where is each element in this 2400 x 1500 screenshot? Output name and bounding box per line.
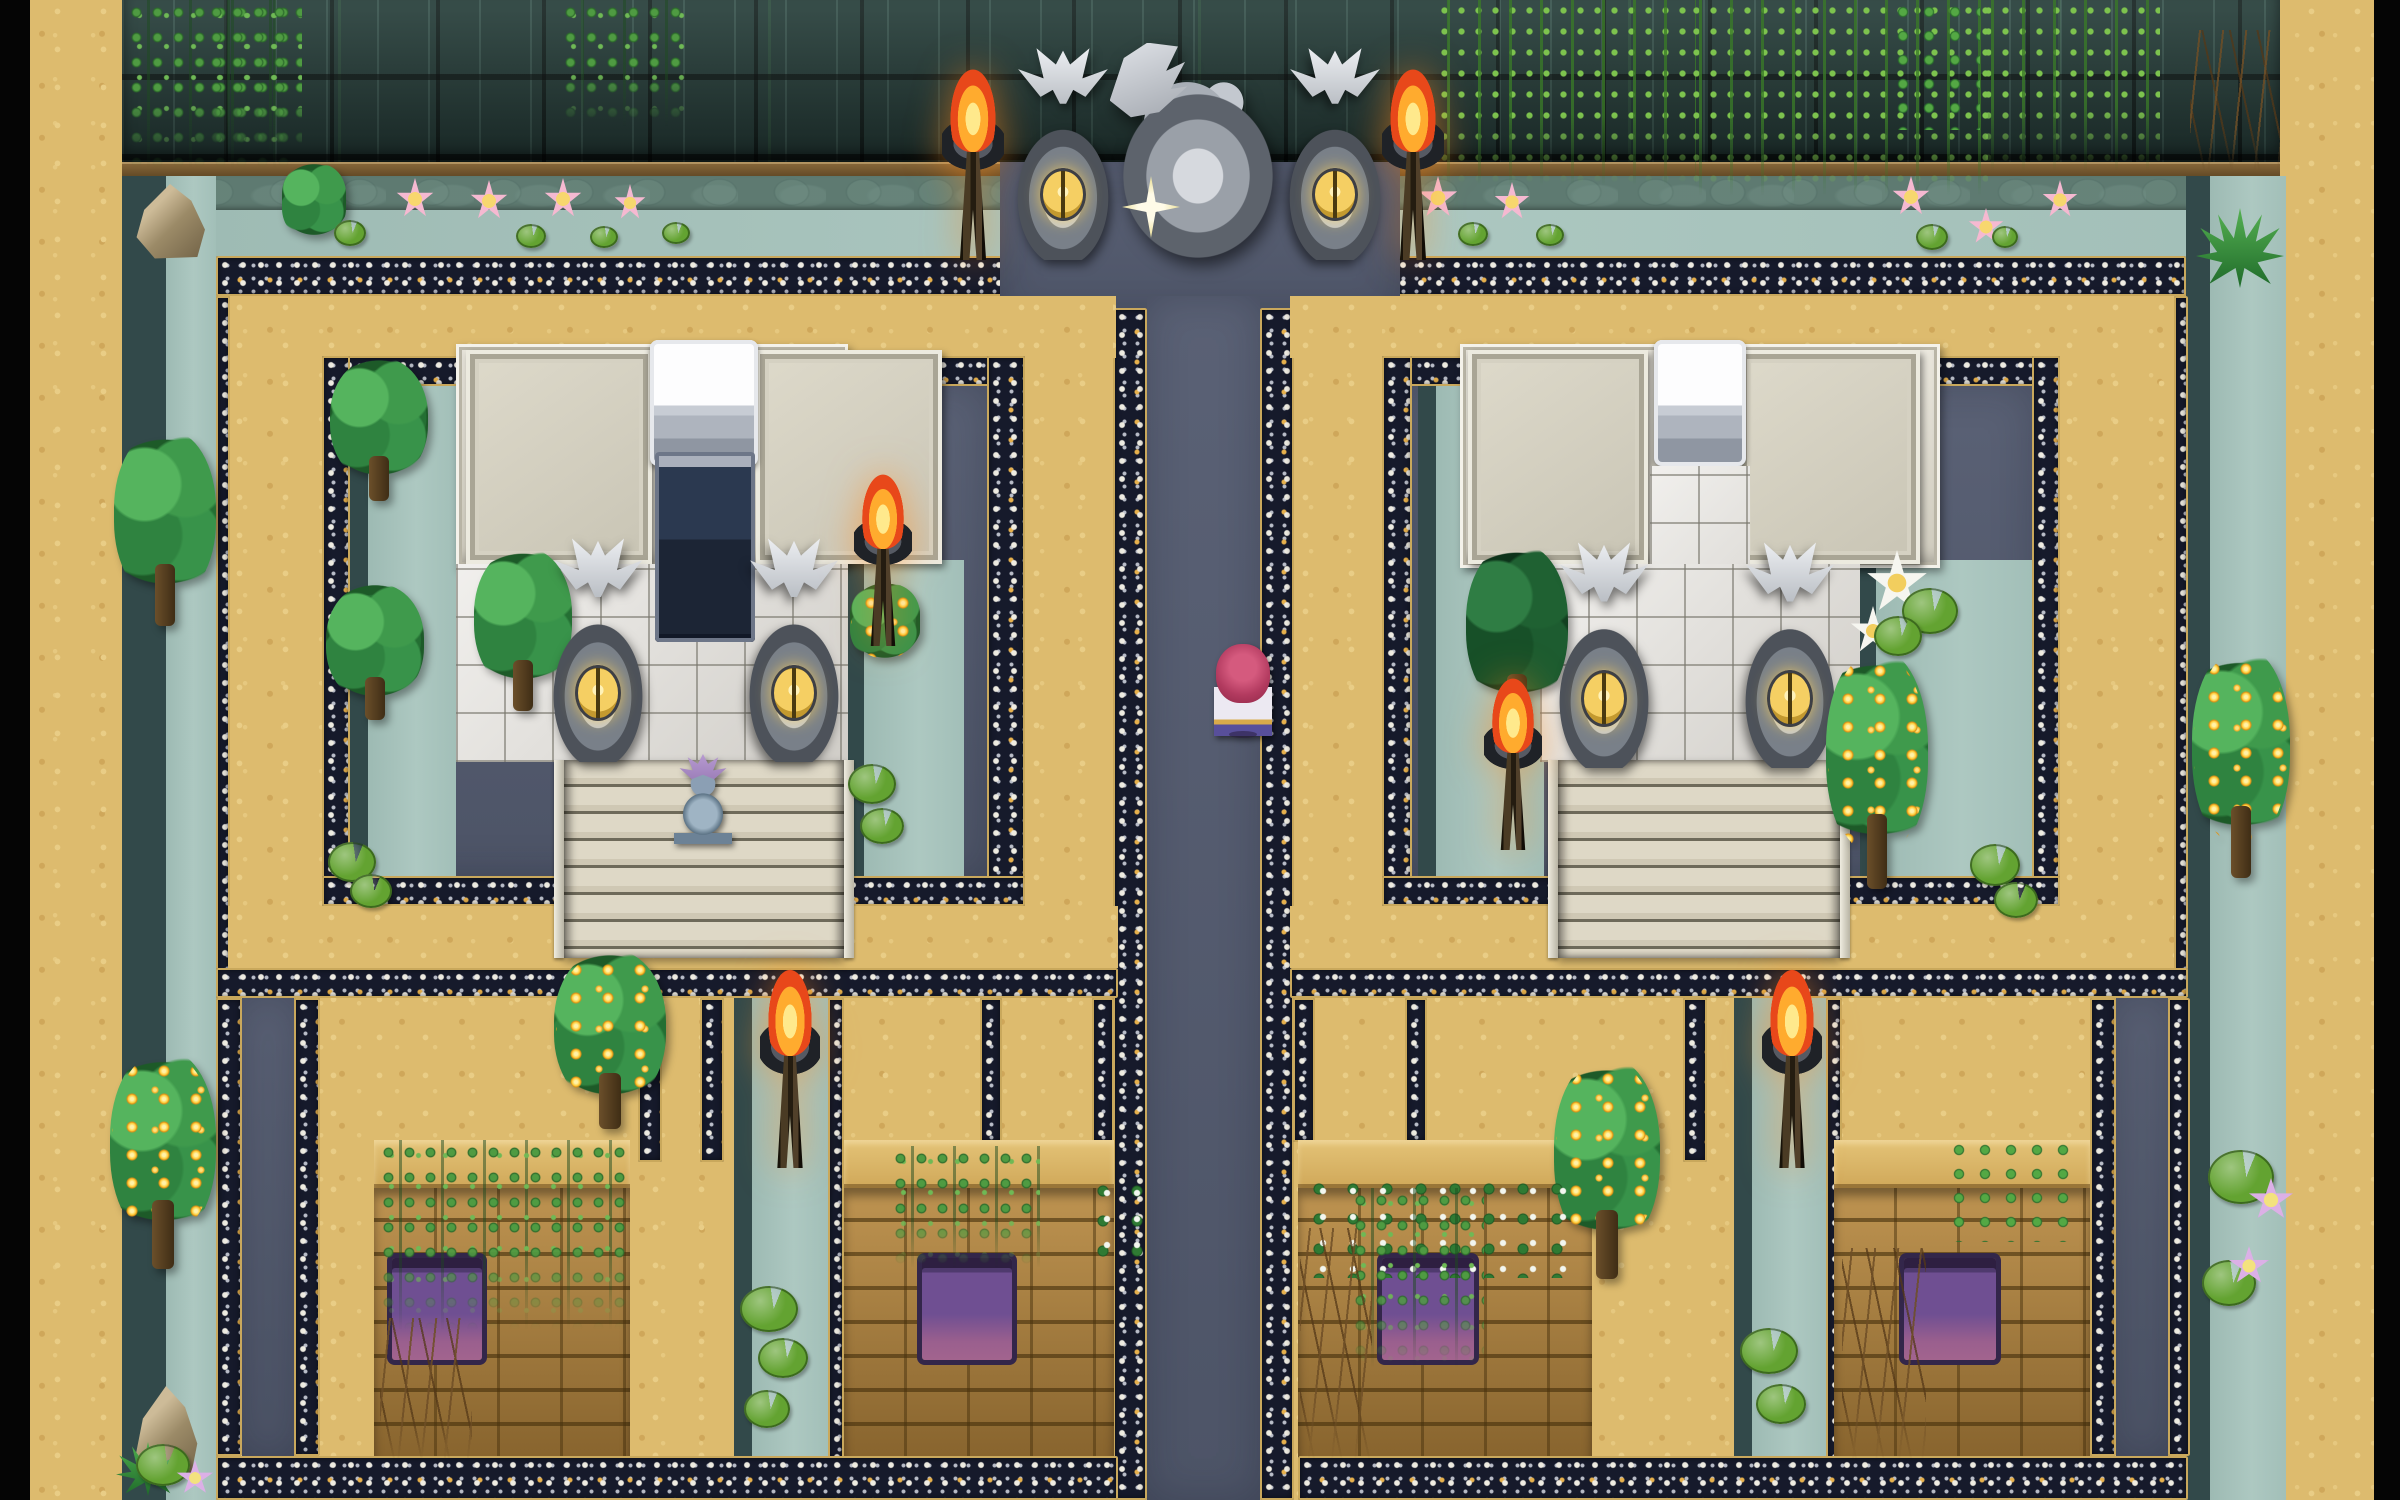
- east-relief-panel-left: [1468, 350, 1648, 564]
- pad-n5: [1458, 222, 1488, 246]
- pad-n3: [590, 226, 618, 248]
- pad-ec3: [1970, 844, 2020, 886]
- pad-n7: [1916, 224, 1948, 250]
- player-character[interactable]: [1214, 644, 1272, 746]
- moat-flower-tree-west: [110, 1050, 216, 1240]
- wall-dry-twigs: [2190, 30, 2280, 170]
- moat-left-shadow: [122, 176, 168, 1500]
- gate-statue-west[interactable]: [1012, 46, 1114, 260]
- pad-n1: [334, 220, 366, 246]
- west-altar[interactable]: [650, 340, 758, 466]
- east-court-sand-left[interactable]: [1294, 296, 1382, 970]
- west-court-trim-inner-right: [987, 356, 1025, 906]
- center-path[interactable]: [1147, 296, 1260, 1500]
- east-court-trim-outer-bottom: [1290, 968, 2188, 998]
- west-court-tree-2: [326, 584, 424, 702]
- south-trim-west: [216, 1456, 1118, 1500]
- pad-ec4: [1994, 882, 2038, 918]
- west-lane[interactable]: [242, 998, 294, 1456]
- house1-vines: [378, 1140, 630, 1335]
- letterbox-left: [0, 0, 30, 1500]
- gate-torch-east: [1382, 60, 1444, 260]
- pad-wc2: [350, 874, 392, 908]
- east-relief-panel-right: [1738, 350, 1920, 564]
- east-statue-right[interactable]: [1740, 540, 1840, 768]
- west-court-trim-outer-bottom: [216, 968, 1118, 998]
- pad-s2: [758, 1338, 808, 1378]
- west-court-sand-left[interactable]: [228, 296, 322, 970]
- west-relief-panel-right: [756, 350, 942, 564]
- east-pond-west-shadow: [1418, 386, 1436, 876]
- wall-willow-1: [1436, 0, 1696, 185]
- pad-n2: [516, 224, 546, 248]
- house3-lane-trim-a: [1293, 998, 1315, 1142]
- west-statue-right[interactable]: [744, 536, 844, 762]
- house2-vine: [890, 1146, 1040, 1271]
- pad-n8: [1992, 226, 2018, 248]
- east-lane-trim-b: [2168, 998, 2190, 1456]
- pad-wc4: [860, 808, 904, 844]
- west-canal-torch: [760, 960, 820, 1168]
- trim-top-east: [1340, 256, 2186, 296]
- house1-dry-vine: [380, 1318, 472, 1460]
- house3-dry-vine: [1300, 1228, 1372, 1460]
- house1-lane-trim-b: [700, 998, 724, 1162]
- house2-door[interactable]: [922, 1258, 1012, 1360]
- trim-top-west: [216, 256, 1060, 296]
- east-temple-torch: [1484, 670, 1542, 850]
- house3-lane-trim-b: [1405, 998, 1427, 1142]
- east-lane[interactable]: [2116, 998, 2168, 1456]
- wall-vine-sparse: [560, 0, 690, 130]
- east-court-sand-right[interactable]: [2058, 296, 2174, 970]
- pad-s1: [740, 1286, 798, 1332]
- center-path-trim-west: [1113, 308, 1147, 1500]
- pad-s5: [1756, 1384, 1806, 1424]
- east-statue-left[interactable]: [1554, 540, 1654, 768]
- wall-vine-climber: [206, 0, 302, 160]
- letterbox-right: [2374, 0, 2400, 1500]
- gate-torch-west: [942, 60, 1004, 260]
- west-temple-torch: [854, 466, 912, 646]
- pad-s4: [1740, 1328, 1798, 1374]
- east-stair-rail-left: [1548, 760, 1558, 958]
- south-trim-east: [1298, 1456, 2188, 1500]
- east-canal-shadow: [1734, 998, 1752, 1460]
- west-canal-shadow: [734, 998, 752, 1460]
- house2-lane-trim-b: [1092, 998, 1114, 1142]
- wall-willow-3: [1980, 0, 2160, 170]
- moat-flower-tree-east: [2192, 648, 2290, 848]
- moat-left: [166, 176, 216, 1500]
- east-canal-torch: [1762, 960, 1822, 1168]
- east-court-trim-inner-right: [2032, 356, 2060, 906]
- gate-statue-east[interactable]: [1284, 46, 1386, 260]
- west-canal-trim: [828, 998, 844, 1460]
- gate-dragon-statue[interactable]: [1106, 38, 1290, 268]
- west-brazier[interactable]: [655, 452, 755, 642]
- house2-white-spray: [1086, 1176, 1160, 1266]
- wall-leaf-sprig: [1890, 0, 1980, 130]
- west-court-sand-right[interactable]: [1025, 296, 1113, 970]
- east-court-flower-tree-1: [1826, 650, 1928, 858]
- east-lane-trim-a: [2090, 998, 2116, 1456]
- pad-w1: [136, 1444, 190, 1486]
- west-stair-rail-left: [554, 760, 564, 958]
- west-statue-left[interactable]: [548, 536, 648, 762]
- pad-wc3: [848, 764, 896, 804]
- house4-lane-trim-a: [1683, 998, 1707, 1162]
- west-court-flower-tree: [554, 950, 666, 1106]
- stair-dragon-npc[interactable]: [674, 754, 732, 848]
- center-path-trim-east: [1260, 308, 1294, 1500]
- house4-leaf-tufts: [1946, 1138, 2072, 1242]
- east-court-trim-outer-right: [2174, 296, 2188, 998]
- west-court-trim-outer-left: [216, 296, 230, 998]
- pad-n4: [662, 222, 690, 244]
- west-relief-panel-left: [466, 350, 652, 564]
- east-altar[interactable]: [1654, 340, 1746, 466]
- east-court-trim-inner-left: [1382, 356, 1412, 906]
- house2-lane-trim-a: [980, 998, 1002, 1142]
- east-stairs[interactable]: [1558, 760, 1840, 958]
- pad-n6: [1536, 224, 1564, 246]
- west-lane-trim-a: [216, 998, 242, 1456]
- game-viewport[interactable]: [0, 0, 2400, 1500]
- house4-dry-vine: [1842, 1248, 1926, 1460]
- moat-tree-west: [114, 430, 216, 600]
- west-court-tree-1: [330, 358, 428, 482]
- west-lane-trim-b: [294, 998, 320, 1456]
- pad-s3: [744, 1390, 790, 1428]
